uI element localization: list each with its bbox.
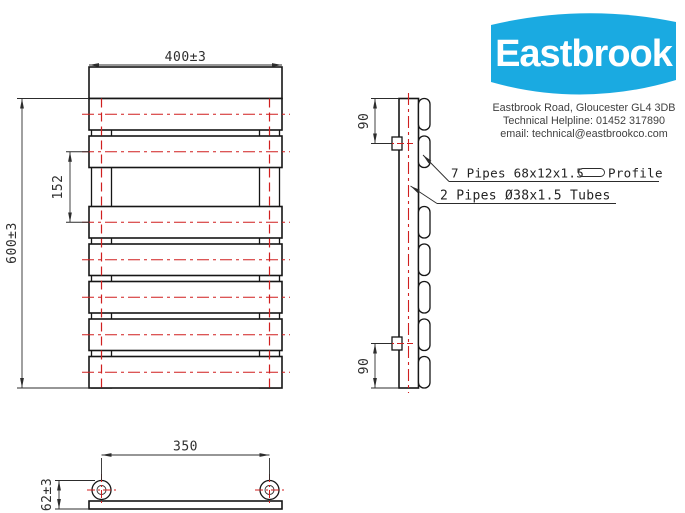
dim-top-offset-text: 90 [357,113,372,130]
dim-depth-text: 62±3 [40,478,55,511]
dim-pipe-centres: 350 [102,440,270,481]
tubes-leader: 2 Pipes Ø38x1.5 Tubes [411,186,617,204]
dim-overall-height: 600±3 [5,99,89,389]
tubes-label: 2 Pipes Ø38x1.5 Tubes [440,189,611,204]
side-panel-7 [419,357,431,389]
side-panel-4 [419,244,431,276]
technical-drawing: 400±3 600±3 152 [0,0,685,513]
dim-towel-gap: 152 [51,152,89,223]
dim-depth: 62±3 [40,478,95,511]
side-panel-5 [419,282,431,314]
profile-label: 7 Pipes 68x12x1.5 [451,166,584,181]
bottom-panel [89,501,282,509]
side-panel-1 [419,99,431,131]
dim-centres-text: 350 [173,440,198,455]
side-panel-2 [419,136,431,168]
address-line: Eastbrook Road, Gloucester GL4 3DB [492,102,675,114]
drawing-sheet: 400±3 600±3 152 [0,0,685,513]
brand-wordmark: Eastbrook [495,33,674,75]
profile-leader: 7 Pipes 68x12x1.5 Profile [423,155,663,182]
dim-bottom-offset-text: 90 [357,358,372,375]
helpline-line: Technical Helpline: 01452 317890 [503,115,665,127]
dim-width-text: 400±3 [165,50,207,65]
dim-height-text: 600±3 [5,222,20,264]
front-panel-1 [89,67,282,99]
profile-label-suffix: Profile [608,166,663,181]
brand-logo: Eastbrook Eastbrook Road, Gloucester GL4… [491,13,676,140]
side-panel-3 [419,207,431,239]
dim-overall-width: 400±3 [89,50,282,65]
profile-leader-arrow [423,155,449,182]
email-line: email: technical@eastbrookco.com [500,128,668,140]
front-view: 400±3 600±3 152 [5,50,290,391]
side-panel-6 [419,319,431,351]
dim-gap-text: 152 [51,175,66,200]
bottom-view: 350 62±3 [40,440,284,512]
